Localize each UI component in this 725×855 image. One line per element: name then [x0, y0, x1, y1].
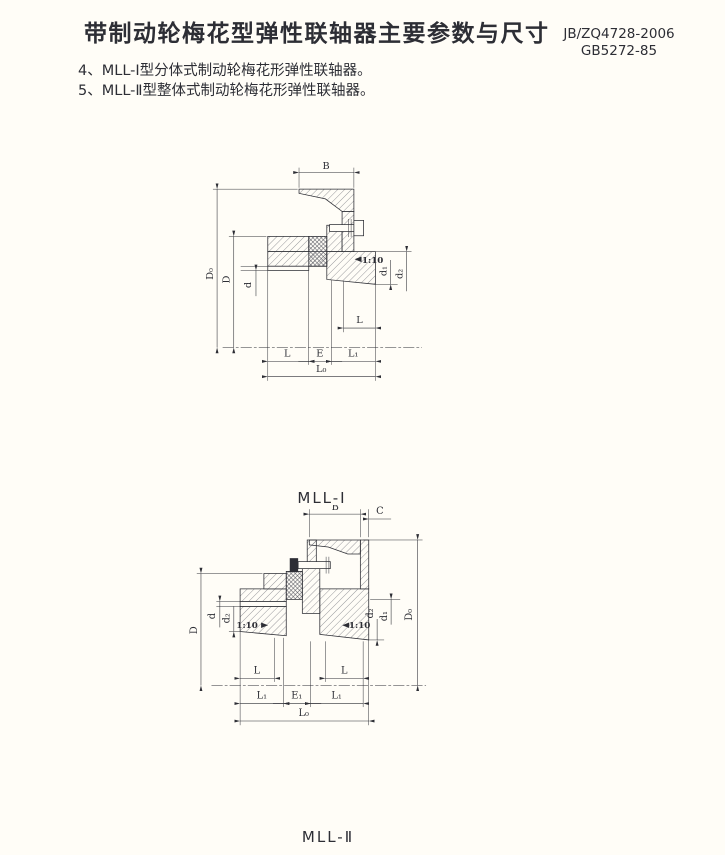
- dim-label-l-right: L: [341, 665, 348, 676]
- elastomer-spider-section: [309, 236, 327, 266]
- rim-left-disc-section: [307, 540, 316, 564]
- page-title: 带制动轮梅花型弹性联轴器主要参数与尺寸: [84, 14, 550, 48]
- dim-label-d1: d₁: [379, 266, 390, 276]
- figure-2-caption: MLL-Ⅱ: [258, 828, 398, 846]
- dim-label-l0: L₀: [316, 364, 326, 375]
- dim-label-c: C: [376, 506, 383, 517]
- dim-label-dbig: D: [189, 626, 200, 634]
- dim-label-l: L: [284, 349, 291, 360]
- dim-label-d: d: [243, 282, 254, 288]
- dim-label-d0: D₀: [205, 268, 216, 280]
- brake-rim-section: [309, 540, 360, 554]
- note-list: 4、MLL-Ⅰ型分体式制动轮梅花形弹性联轴器。 5、MLL-Ⅱ型整体式制动轮梅花…: [78, 61, 375, 101]
- taper-label-left: 1:10: [236, 621, 257, 631]
- dim-label-d0: D₀: [404, 609, 415, 621]
- mll-1-drawing: 1:10 B D₀ D d d₁ d₂ L L E L₁ L₀: [165, 150, 540, 520]
- dim-label-d: d: [207, 613, 218, 619]
- dim-label-l1-right: L₁: [331, 691, 341, 702]
- dim-label-l-left: L: [254, 665, 261, 676]
- dim-label-b: B: [323, 161, 330, 172]
- left-flange-section: [268, 236, 309, 251]
- left-hub-section: [240, 589, 286, 602]
- note-line-5: 5、MLL-Ⅱ型整体式制动轮梅花形弹性联轴器。: [78, 81, 375, 101]
- keyway-slot: [268, 266, 309, 270]
- dim-label-l0: L₀: [299, 708, 309, 719]
- taper-label: 1:10: [362, 256, 383, 266]
- standard-gb: GB5272-85: [556, 43, 682, 60]
- brake-rim-section: [299, 189, 354, 211]
- left-flange-section: [264, 574, 286, 589]
- dim-label-l1: L₁: [348, 349, 358, 360]
- dim-label-l1-left: L₁: [257, 691, 267, 702]
- standard-jb: JB/ZQ4728-2006: [556, 26, 682, 43]
- rim-right-wall-section: [360, 540, 368, 589]
- bolt-head: [290, 558, 298, 572]
- dim-label-d1: d₁: [379, 611, 390, 621]
- mll-2-drawing: 1:10 1:10 B C D d d₂ d₂ d₁ D₀ L L L₁ E₁ …: [180, 505, 540, 835]
- note-line-4: 4、MLL-Ⅰ型分体式制动轮梅花形弹性联轴器。: [78, 61, 375, 81]
- dim-label-dbig: D: [222, 275, 233, 283]
- dim-label-b: B: [332, 505, 339, 513]
- dim-label-d2-right: d₂: [365, 608, 376, 618]
- mll1-section-shapes: [268, 189, 376, 284]
- dim-label-d2: d₂: [395, 269, 406, 279]
- dim-label-l-hub: L: [356, 315, 363, 326]
- dim-label-e: E: [316, 349, 323, 360]
- dim-label-e1: E₁: [291, 691, 302, 702]
- document-page: 带制动轮梅花型弹性联轴器主要参数与尺寸 JB/ZQ4728-2006 GB527…: [0, 0, 725, 855]
- taper-label-right: 1:10: [349, 621, 370, 631]
- elastomer-spider-section: [286, 571, 302, 599]
- dim-label-d2-left: d₂: [222, 613, 233, 623]
- right-hub-section: [320, 589, 369, 640]
- standard-numbers: JB/ZQ4728-2006 GB5272-85: [556, 26, 682, 60]
- keyway-slot: [240, 601, 286, 606]
- right-flange-section: [302, 564, 319, 613]
